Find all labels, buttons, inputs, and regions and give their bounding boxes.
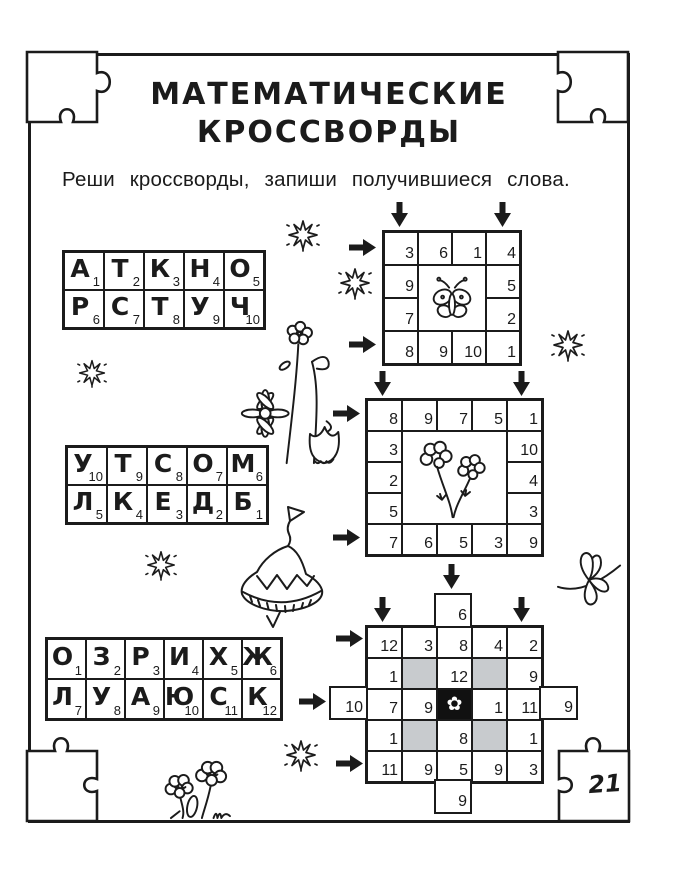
grid-cell: 8 <box>367 400 402 431</box>
letter: А <box>131 682 150 711</box>
letter: Н <box>190 254 211 283</box>
grid-cell: 7 <box>384 298 418 331</box>
grid-cell: 10 <box>507 431 542 462</box>
grid-cell: 7 <box>437 400 472 431</box>
letter-cell: Ю10 <box>164 679 203 719</box>
right-arrow-icon <box>336 630 363 647</box>
letter-cell: Т2 <box>104 252 144 290</box>
letter-number: 5 <box>96 507 103 522</box>
grid-cell: 3 <box>507 493 542 524</box>
grid-cell: 9 <box>402 751 437 782</box>
grid-cell: 1 <box>367 658 402 689</box>
grid-cell: 1 <box>367 720 402 751</box>
page-title: МАТЕМАТИЧЕСКИЕ КРОССВОРДЫ <box>28 76 630 152</box>
letter: С <box>111 292 129 321</box>
letter-cell: Т9 <box>107 447 147 485</box>
letter: Ж <box>242 642 273 671</box>
grid-cell: 2 <box>507 627 542 658</box>
page-number: 21 <box>582 768 628 799</box>
letter-number: 6 <box>256 469 263 484</box>
letter-number: 8 <box>173 312 180 327</box>
grid-cell: 11 <box>367 751 402 782</box>
grid-cell: 1 <box>507 400 542 431</box>
letter-cell: Н4 <box>184 252 224 290</box>
down-arrow-icon <box>391 202 408 227</box>
letter-number: 4 <box>213 274 220 289</box>
letter: О <box>192 449 213 478</box>
sparkle-star-icon <box>338 266 372 300</box>
sparkle-star-icon <box>284 738 318 772</box>
letter: Х <box>209 642 228 671</box>
grid-cell: 9 <box>472 751 507 782</box>
gray-cell <box>472 658 507 689</box>
letter: Л <box>73 487 94 516</box>
right-arrow-icon <box>299 693 326 710</box>
grid-cell: 11 <box>507 689 542 720</box>
letter: Т <box>151 292 168 321</box>
letter-number: 3 <box>153 663 160 678</box>
sparkle-star-icon <box>77 358 107 388</box>
down-arrow-icon <box>443 564 460 589</box>
letter: И <box>169 642 190 671</box>
grid-cell: 4 <box>486 232 520 265</box>
grid-cell: 9 <box>507 658 542 689</box>
grid-cell: 9 <box>507 524 542 555</box>
grid-cell: 8 <box>437 627 472 658</box>
letter-cell: Р6 <box>64 290 104 328</box>
letter-number: 9 <box>153 703 160 718</box>
gray-cell <box>472 720 507 751</box>
down-arrow-icon <box>494 202 511 227</box>
letter: Т <box>111 254 128 283</box>
right-arrow-icon <box>349 336 376 353</box>
flower-icon: ✿ <box>437 689 472 720</box>
grid-cell: 6 <box>402 524 437 555</box>
letter-number: 5 <box>231 663 238 678</box>
grid-cell: 9 <box>402 400 437 431</box>
letter-number: 10 <box>89 469 103 484</box>
letter: А <box>70 254 89 283</box>
grid-cell: 5 <box>437 751 472 782</box>
flowers-illustration <box>402 431 507 524</box>
letter: О <box>52 642 73 671</box>
meadow-flowers-illustration <box>158 758 240 820</box>
letter-cell: Т8 <box>144 290 184 328</box>
down-arrow-icon <box>513 371 530 396</box>
grid-cell: 3 <box>507 751 542 782</box>
letter-cell: О1 <box>47 639 86 679</box>
grid-cell: 8 <box>384 331 418 364</box>
grid-cell: 2 <box>486 298 520 331</box>
grid-cell: 12 <box>367 627 402 658</box>
letter-cell: А1 <box>64 252 104 290</box>
right-arrow-icon <box>349 239 376 256</box>
letter: Е <box>154 487 171 516</box>
letter-cell: Д2 <box>187 485 227 523</box>
grid-cell: 3 <box>402 627 437 658</box>
letter-number: 10 <box>185 703 199 718</box>
grid-cell: 5 <box>437 524 472 555</box>
down-arrow-icon <box>374 597 391 622</box>
page-title-line1: МАТЕМАТИЧЕСКИЕ <box>28 76 630 114</box>
letter-cell: С8 <box>147 447 187 485</box>
letter-number: 3 <box>173 274 180 289</box>
sparkle-star-icon <box>551 328 585 362</box>
letter-number: 7 <box>133 312 140 327</box>
grid-cell: 3 <box>384 232 418 265</box>
letter: Д <box>192 487 214 516</box>
grid-cell: 2 <box>367 462 402 493</box>
sparkle-star-icon <box>145 549 177 581</box>
letter-cell: Р3 <box>125 639 164 679</box>
letter-cell: Л5 <box>67 485 107 523</box>
right-arrow-icon <box>336 755 363 772</box>
letter: Т <box>114 449 131 478</box>
letter-number: 4 <box>192 663 199 678</box>
crossword-grid-2: 8 9 7 5 1 3 10 2 <box>365 398 544 557</box>
letter-number: 8 <box>114 703 121 718</box>
letter-cell: А9 <box>125 679 164 719</box>
letter-number: 6 <box>93 312 100 327</box>
letter-table-3: О1 З2 Р3 И4 Х5 Ж6 Л7 У8 А9 Ю10 С11 К12 <box>45 637 283 721</box>
grid-cell: 7 <box>367 689 402 720</box>
letter-cell: Л7 <box>47 679 86 719</box>
flower-bouquet-illustration <box>236 318 348 466</box>
grid-cell: 1 <box>486 331 520 364</box>
grid-cell: 3 <box>472 524 507 555</box>
crossword-grid-1: 3 6 1 4 9 5 7 2 8 9 10 1 <box>382 230 522 366</box>
grid-cell: 5 <box>486 265 520 298</box>
instruction-text: Реши кроссворды, запиши получившиеся сло… <box>62 168 614 192</box>
letter-number: 2 <box>114 663 121 678</box>
grid-cell: 12 <box>437 658 472 689</box>
letter-number: 4 <box>136 507 143 522</box>
letter-number: 9 <box>213 312 220 327</box>
sparkle-star-icon <box>286 218 320 252</box>
letter-number: 12 <box>263 703 277 718</box>
grid-cell: 9 <box>418 331 452 364</box>
grid-cell: 3 <box>367 431 402 462</box>
letter-cell: К3 <box>144 252 184 290</box>
letter: У <box>92 682 111 711</box>
letter-cell: Х5 <box>203 639 242 679</box>
letter: У <box>190 292 209 321</box>
letter: О <box>229 254 250 283</box>
right-arrow-icon <box>333 529 360 546</box>
grid-cell: 4 <box>507 462 542 493</box>
workbook-page: 21 МАТЕМАТИЧЕСКИЕ КРОССВОРДЫ Реши кроссв… <box>0 0 674 880</box>
grid-cell: 8 <box>437 720 472 751</box>
letter-number: 6 <box>270 663 277 678</box>
grid-cell: 7 <box>367 524 402 555</box>
grid-cell: 6 <box>418 232 452 265</box>
letter-number: 5 <box>253 274 260 289</box>
letter: Р <box>131 642 149 671</box>
letter-number: 2 <box>133 274 140 289</box>
letter: К <box>113 487 133 516</box>
grid-cell: 1 <box>507 720 542 751</box>
letter-cell: У9 <box>184 290 224 328</box>
letter-cell: З2 <box>86 639 125 679</box>
grid-cell: 10 <box>452 331 486 364</box>
grid-cell: 9 <box>384 265 418 298</box>
letter-cell: О5 <box>224 252 264 290</box>
down-arrow-icon <box>374 371 391 396</box>
letter-cell: У8 <box>86 679 125 719</box>
letter-cell: С11 <box>203 679 242 719</box>
letter-cell: Ж6 <box>242 639 281 679</box>
grid3-extension-right: 9 <box>539 686 578 720</box>
letter: Л <box>52 682 73 711</box>
letter-number: 7 <box>75 703 82 718</box>
spinning-top-illustration <box>222 505 334 640</box>
letter-number: 8 <box>176 469 183 484</box>
crossword-grid-3: 12 3 8 4 2 1 12 9 7 9 ✿ 1 11 1 8 1 11 9 … <box>365 625 544 784</box>
letter-number: 7 <box>216 469 223 484</box>
puzzle-piece-bottom-left-icon <box>27 751 97 821</box>
letter-cell: К12 <box>242 679 281 719</box>
grid-cell: 1 <box>472 689 507 720</box>
letter-number: 1 <box>75 663 82 678</box>
letter-number: 1 <box>93 274 100 289</box>
grid-cell: 4 <box>472 627 507 658</box>
page-title-line2: КРОССВОРДЫ <box>28 114 630 152</box>
grid3-extension-bottom: 9 <box>434 779 472 814</box>
letter: З <box>93 642 111 671</box>
gray-cell <box>402 720 437 751</box>
grid-cell: 5 <box>472 400 507 431</box>
letter: К <box>150 254 170 283</box>
letter-number: 3 <box>176 507 183 522</box>
down-arrow-icon <box>513 597 530 622</box>
letter: С <box>154 449 172 478</box>
butterfly-illustration <box>418 265 486 331</box>
gray-cell <box>402 658 437 689</box>
dragonfly-illustration <box>556 548 624 616</box>
letter-cell: Е3 <box>147 485 187 523</box>
letter-cell: К4 <box>107 485 147 523</box>
letter-cell: О7 <box>187 447 227 485</box>
grid-cell: 9 <box>402 689 437 720</box>
grid-cell: 1 <box>452 232 486 265</box>
letter: Р <box>71 292 89 321</box>
letter-cell: С7 <box>104 290 144 328</box>
letter-cell: У10 <box>67 447 107 485</box>
letter-number: 11 <box>225 703 239 718</box>
grid-cell: 5 <box>367 493 402 524</box>
letter-cell: И4 <box>164 639 203 679</box>
letter-number: 9 <box>136 469 143 484</box>
grid3-extension-top: 6 <box>434 593 472 628</box>
grid3-extension-left: 10 <box>329 686 368 720</box>
